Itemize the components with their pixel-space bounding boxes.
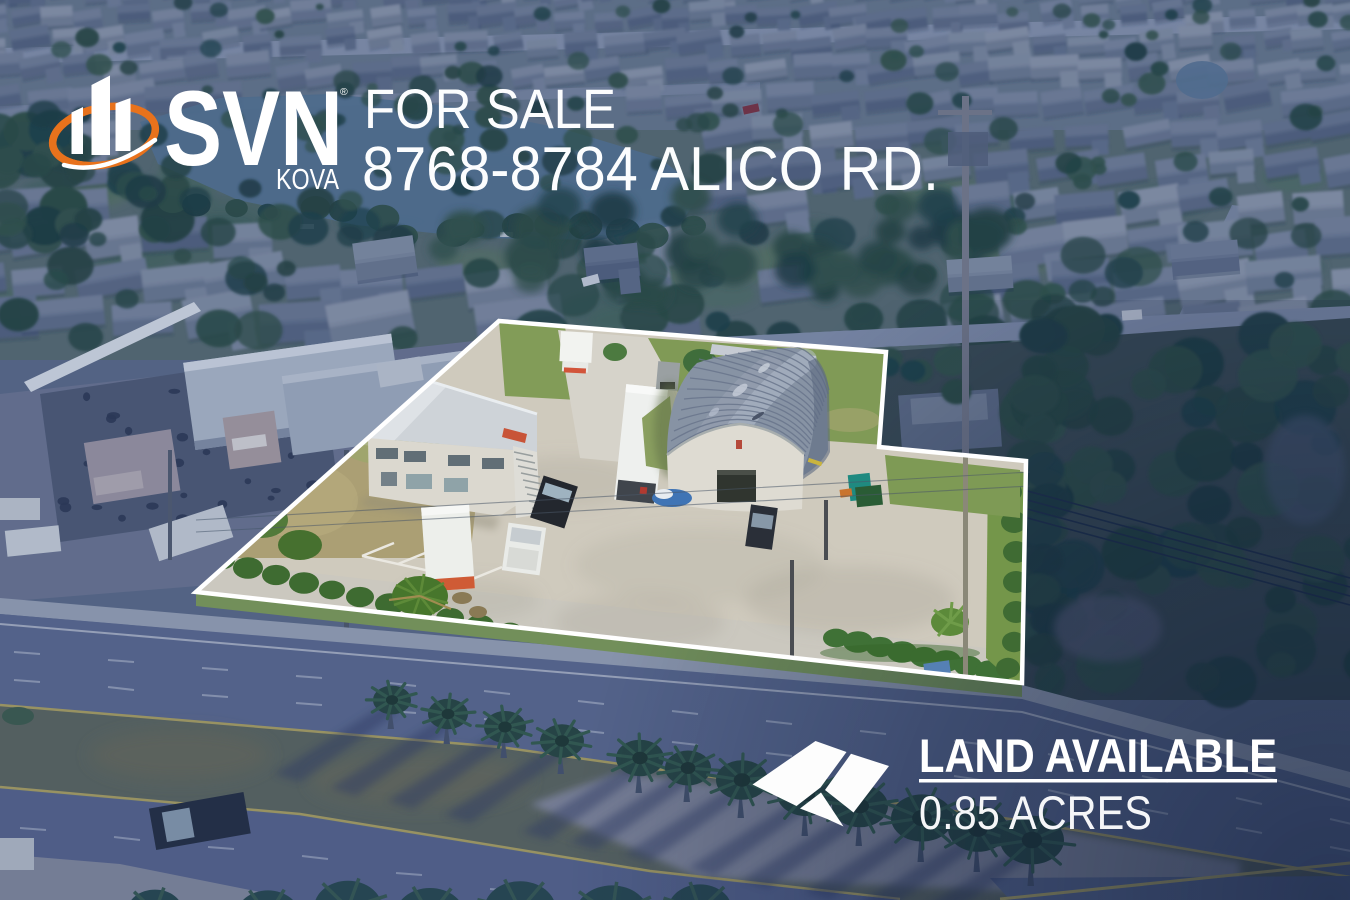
svg-text:LAND AVAILABLE: LAND AVAILABLE bbox=[919, 730, 1277, 783]
svg-text:FOR SALE: FOR SALE bbox=[364, 77, 616, 140]
svg-text:8768-8784 ALICO RD.: 8768-8784 ALICO RD. bbox=[362, 135, 939, 204]
svg-text:®: ® bbox=[340, 86, 348, 98]
svg-text:KOVA: KOVA bbox=[276, 164, 340, 196]
svg-text:0.85 ACRES: 0.85 ACRES bbox=[919, 787, 1152, 840]
